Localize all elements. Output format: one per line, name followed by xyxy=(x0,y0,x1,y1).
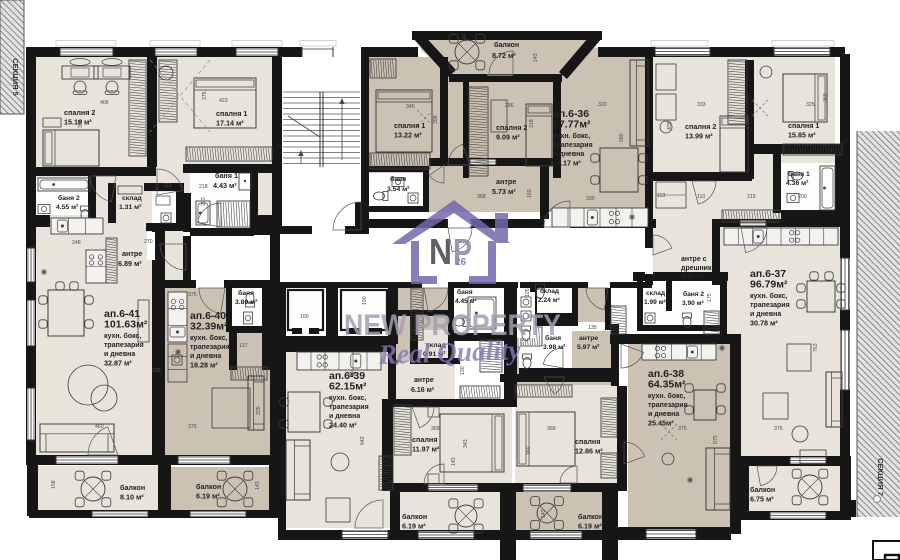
svg-text:трапезария: трапезария xyxy=(750,302,790,309)
svg-text:и дневна: и дневна xyxy=(750,311,781,318)
svg-text:спалня 1: спалня 1 xyxy=(216,109,247,118)
svg-text:113: 113 xyxy=(163,183,171,189)
svg-text:143: 143 xyxy=(255,481,261,490)
svg-text:СЕКЦИЯ 7: СЕКЦИЯ 7 xyxy=(876,458,885,496)
svg-text:763: 763 xyxy=(813,343,819,352)
svg-text:спалня 2: спалня 2 xyxy=(64,108,95,117)
svg-text:8.45 м²: 8.45 м² xyxy=(681,274,705,281)
svg-text:антре: антре xyxy=(579,335,598,342)
svg-text:спалня 2: спалня 2 xyxy=(685,122,716,131)
svg-text:143: 143 xyxy=(541,509,547,518)
svg-text:трапезария: трапезария xyxy=(553,142,593,149)
svg-text:трапезария: трапезария xyxy=(329,404,369,411)
svg-text:и дневна: и дневна xyxy=(329,413,360,420)
svg-text:3.54 м²: 3.54 м² xyxy=(387,186,410,193)
svg-text:5.73 м²: 5.73 м² xyxy=(492,187,516,196)
svg-text:30.78 м²: 30.78 м² xyxy=(750,319,778,328)
svg-text:286: 286 xyxy=(505,103,514,109)
svg-text:435: 435 xyxy=(667,121,673,130)
svg-text:трапезария: трапезария xyxy=(648,402,688,409)
svg-text:25.45м²: 25.45м² xyxy=(648,419,674,428)
svg-text:64.35м²: 64.35м² xyxy=(648,379,686,391)
svg-text:358: 358 xyxy=(477,194,486,200)
svg-text:Real Quality: Real Quality xyxy=(377,335,522,371)
svg-text:368: 368 xyxy=(547,426,556,432)
svg-text:6.89 м²: 6.89 м² xyxy=(118,259,142,268)
svg-text:160: 160 xyxy=(527,189,533,198)
svg-text:15.19 м²: 15.19 м² xyxy=(64,118,92,127)
svg-text:трапезария: трапезария xyxy=(104,342,144,349)
svg-text:8.10 м²: 8.10 м² xyxy=(120,493,144,502)
svg-text:трапезария: трапезария xyxy=(190,344,230,351)
svg-text:1.99 м²: 1.99 м² xyxy=(644,299,667,306)
svg-text:158: 158 xyxy=(51,480,57,489)
svg-text:6.16 м²: 6.16 м² xyxy=(411,387,435,394)
svg-text:балкон: балкон xyxy=(402,512,427,521)
svg-text:СЕКЦИЯ 5: СЕКЦИЯ 5 xyxy=(11,58,20,96)
svg-text:и дневна: и дневна xyxy=(553,151,584,158)
svg-text:3.90 м²: 3.90 м² xyxy=(682,300,705,307)
svg-text:антре: антре xyxy=(414,377,434,384)
svg-text:склад: склад xyxy=(122,195,142,202)
svg-text:325: 325 xyxy=(806,102,815,108)
svg-text:460: 460 xyxy=(95,424,104,430)
svg-text:склад: склад xyxy=(646,290,666,297)
svg-text:26: 26 xyxy=(455,257,467,268)
svg-text:антре с: антре с xyxy=(681,256,707,263)
svg-text:215: 215 xyxy=(747,194,756,200)
svg-text:318: 318 xyxy=(529,119,535,128)
svg-text:спалня 2: спалня 2 xyxy=(496,123,527,132)
svg-text:135: 135 xyxy=(588,325,597,331)
svg-text:4.55 м²: 4.55 м² xyxy=(56,204,79,211)
svg-text:баня: баня xyxy=(238,289,254,297)
svg-text:кухн. бокс,: кухн. бокс, xyxy=(648,392,685,400)
svg-text:203: 203 xyxy=(201,197,207,206)
svg-text:330: 330 xyxy=(586,196,595,202)
svg-text:143: 143 xyxy=(451,457,457,466)
svg-text:18.28 м²: 18.28 м² xyxy=(190,361,218,370)
svg-text:375: 375 xyxy=(774,426,783,432)
svg-text:360: 360 xyxy=(823,93,829,102)
svg-text:143: 143 xyxy=(533,53,539,62)
svg-text:3.80 м²: 3.80 м² xyxy=(235,299,258,306)
svg-text:балкон: балкон xyxy=(578,512,603,521)
svg-text:спалня 1: спалня 1 xyxy=(394,121,425,130)
svg-text:спалня 1: спалня 1 xyxy=(788,121,819,130)
svg-text:96.79м²: 96.79м² xyxy=(750,279,788,291)
svg-text:406: 406 xyxy=(100,100,109,106)
svg-text:спалня: спалня xyxy=(575,437,600,446)
svg-text:113: 113 xyxy=(657,193,665,199)
svg-text:343: 343 xyxy=(463,439,469,448)
svg-text:335: 335 xyxy=(256,406,262,415)
svg-text:67.77м²: 67.77м² xyxy=(553,119,591,131)
svg-text:175: 175 xyxy=(707,293,713,302)
svg-text:270: 270 xyxy=(144,239,153,245)
svg-text:975: 975 xyxy=(713,435,719,444)
svg-text:101.63м²: 101.63м² xyxy=(104,319,148,331)
svg-text:8.72 м²: 8.72 м² xyxy=(492,51,516,60)
svg-text:N: N xyxy=(429,231,452,272)
svg-text:дрешник: дрешник xyxy=(681,265,712,272)
svg-text:345: 345 xyxy=(406,104,415,110)
svg-text:кухн. бокс,: кухн. бокс, xyxy=(104,332,141,340)
svg-text:423: 423 xyxy=(219,98,228,104)
svg-text:218: 218 xyxy=(199,184,208,190)
svg-text:кухн. бокс,: кухн. бокс, xyxy=(553,132,590,140)
svg-text:4.36 м²: 4.36 м² xyxy=(786,180,809,187)
svg-text:190: 190 xyxy=(362,296,368,305)
svg-text:13.99 м²: 13.99 м² xyxy=(685,132,713,141)
svg-text:62.15м²: 62.15м² xyxy=(329,381,367,393)
svg-text:17.14 м²: 17.14 м² xyxy=(216,119,244,128)
svg-text:19.17 м²: 19.17 м² xyxy=(553,159,581,168)
svg-text:642: 642 xyxy=(360,436,366,445)
svg-text:балкон: балкон xyxy=(120,483,145,492)
svg-text:333: 333 xyxy=(697,102,706,108)
svg-text:и дневна: и дневна xyxy=(648,411,679,418)
svg-text:375: 375 xyxy=(188,292,197,298)
svg-text:32.39м²: 32.39м² xyxy=(190,321,228,333)
svg-text:6.75 м²: 6.75 м² xyxy=(750,495,774,504)
svg-text:баня: баня xyxy=(390,175,406,183)
svg-text:6.19 м²: 6.19 м² xyxy=(578,522,602,531)
svg-text:110: 110 xyxy=(697,194,705,200)
svg-text:15.85 м²: 15.85 м² xyxy=(788,131,816,140)
svg-text:антре: антре xyxy=(122,249,142,258)
svg-text:баня 2: баня 2 xyxy=(58,194,80,202)
svg-text:антре: антре xyxy=(496,177,516,186)
svg-text:248: 248 xyxy=(72,240,81,246)
svg-text:13.22 м²: 13.22 м² xyxy=(394,131,422,140)
svg-text:балкон: балкон xyxy=(196,482,221,491)
svg-text:2.24 м²: 2.24 м² xyxy=(538,297,561,304)
svg-text:балкон: балкон xyxy=(494,40,519,49)
svg-text:375: 375 xyxy=(678,426,687,432)
svg-text:137: 137 xyxy=(239,343,248,349)
svg-text:368: 368 xyxy=(431,426,440,432)
svg-text:5.97 м²: 5.97 м² xyxy=(577,344,600,351)
svg-text:балкон: балкон xyxy=(750,485,775,494)
svg-text:кухн. бокс,: кухн. бокс, xyxy=(329,394,366,402)
svg-text:360: 360 xyxy=(526,446,532,455)
svg-text:спалня: спалня xyxy=(412,435,437,444)
svg-text:6.19 м²: 6.19 м² xyxy=(196,492,220,501)
svg-text:375: 375 xyxy=(188,424,197,430)
svg-text:24.40 м²: 24.40 м² xyxy=(329,421,357,430)
svg-text:32.87 м²: 32.87 м² xyxy=(104,359,132,368)
svg-text:11.97 м²: 11.97 м² xyxy=(412,445,440,454)
svg-text:и дневна: и дневна xyxy=(190,353,221,360)
svg-text:баня: баня xyxy=(457,288,473,296)
svg-text:баня 2: баня 2 xyxy=(683,290,704,298)
svg-text:143: 143 xyxy=(462,33,468,42)
svg-text:4.43 м²: 4.43 м² xyxy=(213,181,237,190)
svg-text:12.86 м²: 12.86 м² xyxy=(575,447,603,456)
svg-text:3.98 м²: 3.98 м² xyxy=(543,344,566,351)
svg-text:4.45 м²: 4.45 м² xyxy=(455,298,478,305)
svg-text:680: 680 xyxy=(619,133,625,142)
svg-text:398: 398 xyxy=(433,115,439,124)
svg-text:6.19 м²: 6.19 м² xyxy=(402,522,426,531)
svg-text:375: 375 xyxy=(202,91,208,100)
svg-text:320: 320 xyxy=(598,102,607,108)
svg-text:кухн. бокс,: кухн. бокс, xyxy=(750,292,787,300)
svg-text:160: 160 xyxy=(300,314,309,320)
svg-text:1.31 м²: 1.31 м² xyxy=(119,204,142,211)
svg-text:склад: склад xyxy=(540,288,560,295)
svg-text:105: 105 xyxy=(525,288,531,297)
svg-text:и дневна: и дневна xyxy=(104,351,135,358)
svg-text:288: 288 xyxy=(152,368,161,374)
svg-text:кухн. бокс,: кухн. бокс, xyxy=(190,334,227,342)
svg-text:баня 1: баня 1 xyxy=(215,171,238,180)
svg-text:9.09 м²: 9.09 м² xyxy=(496,133,520,142)
svg-text:200: 200 xyxy=(798,194,807,200)
svg-text:баня 1: баня 1 xyxy=(788,170,810,178)
